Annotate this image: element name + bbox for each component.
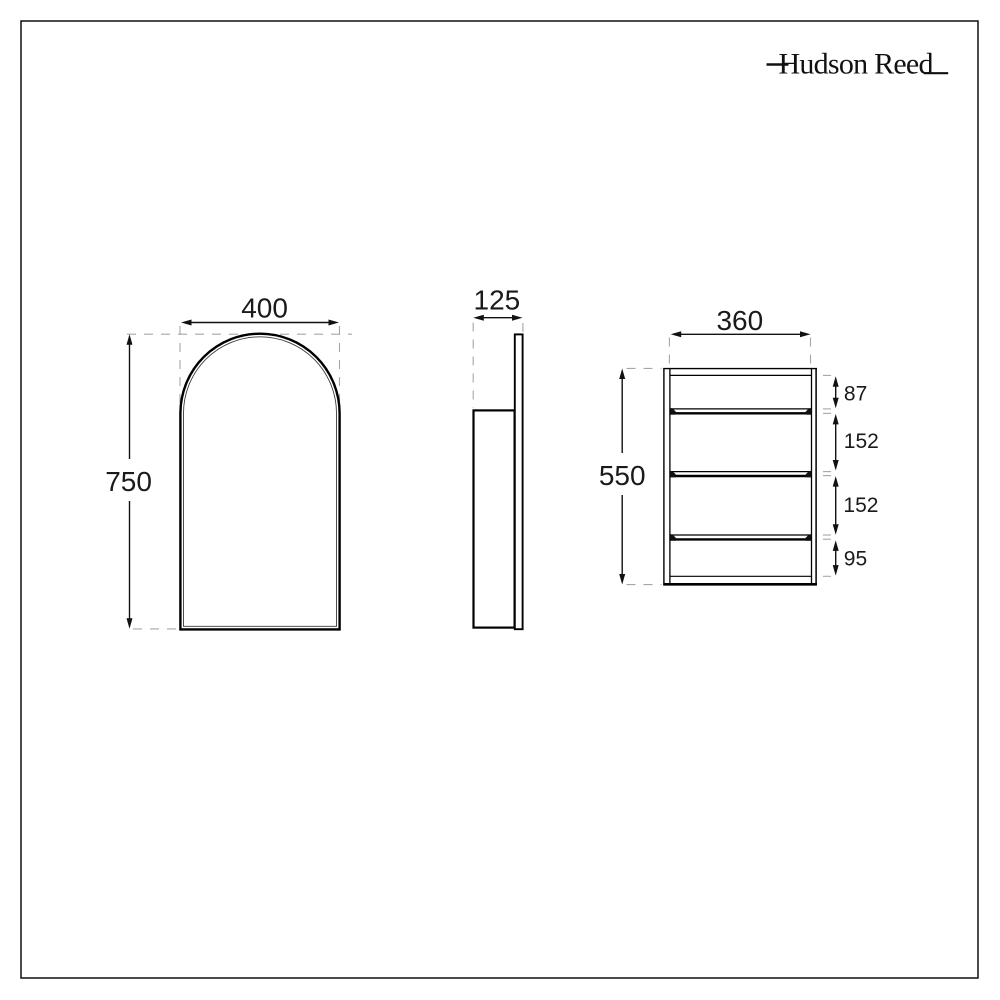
svg-text:360: 360 xyxy=(716,305,763,336)
svg-text:Hudson Reed: Hudson Reed xyxy=(779,48,934,81)
svg-text:152: 152 xyxy=(843,494,878,517)
svg-text:125: 125 xyxy=(474,284,521,315)
svg-text:152: 152 xyxy=(844,430,879,453)
svg-text:95: 95 xyxy=(844,547,867,570)
svg-text:750: 750 xyxy=(105,466,152,497)
svg-text:550: 550 xyxy=(599,460,646,491)
svg-text:400: 400 xyxy=(241,292,288,323)
svg-text:87: 87 xyxy=(844,382,867,405)
